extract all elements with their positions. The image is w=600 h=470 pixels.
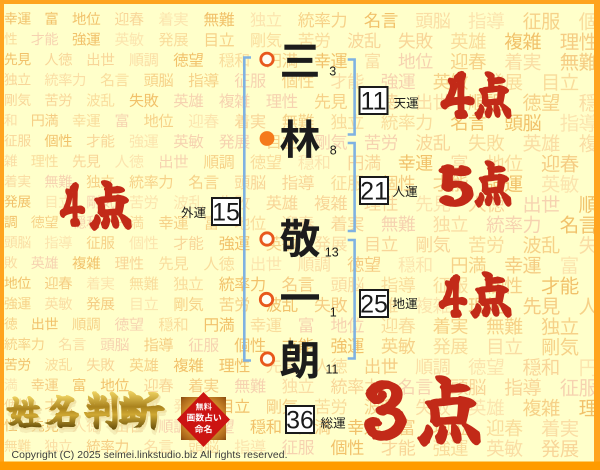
svg-text:36: 36 (286, 407, 314, 435)
svg-text:3: 3 (329, 65, 336, 79)
svg-text:13: 13 (325, 246, 339, 260)
svg-text:21: 21 (360, 178, 388, 206)
svg-text:1: 1 (330, 306, 337, 320)
svg-text:Copyright (C) 2025 seimei.link: Copyright (C) 2025 seimei.linkstudio.biz… (12, 450, 288, 461)
svg-text:25: 25 (360, 291, 388, 319)
svg-text:11: 11 (361, 88, 387, 116)
svg-text:11: 11 (326, 363, 339, 377)
svg-text:15: 15 (212, 199, 240, 227)
svg-text:8: 8 (330, 144, 337, 158)
